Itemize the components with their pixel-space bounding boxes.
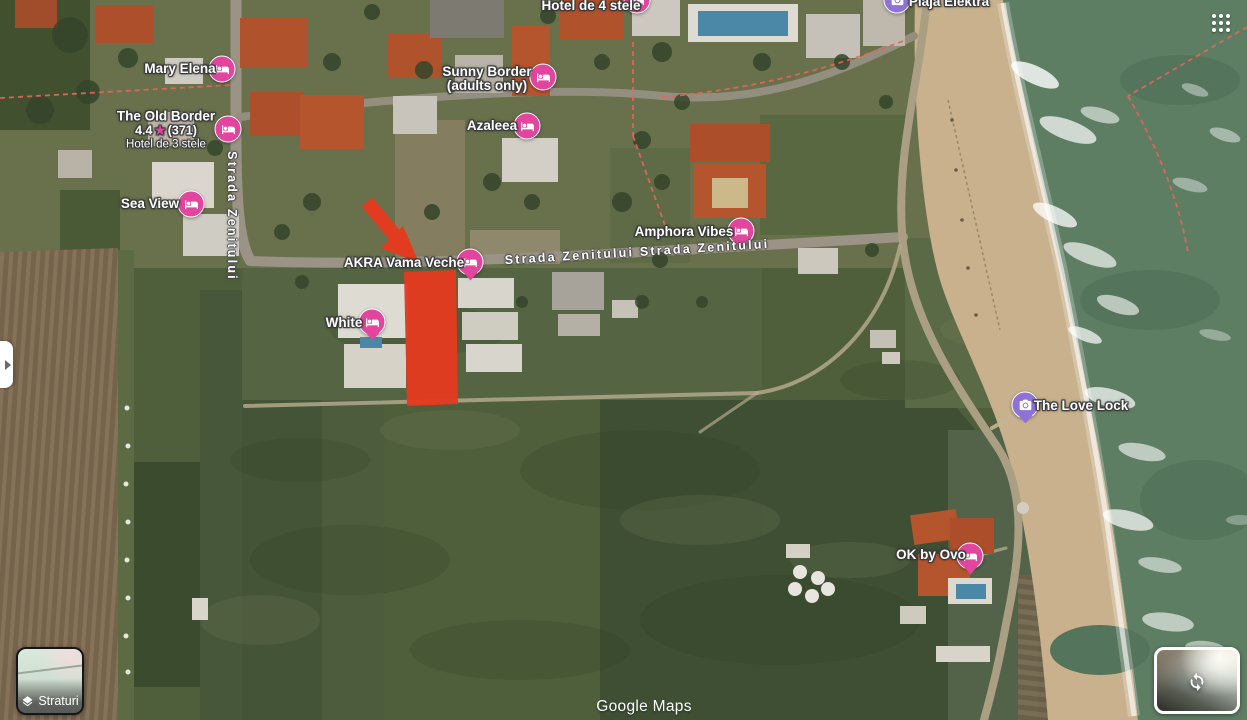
layers-control[interactable]: Straturi — [16, 647, 84, 715]
place-label-sunny-border[interactable]: Sunny Border(adults only) — [442, 65, 531, 93]
place-label-hotel-de-4-stele[interactable]: Hotel de 4 stele — [541, 0, 640, 13]
place-marker-sea-view[interactable] — [178, 191, 205, 218]
google-maps-watermark: Google Maps — [596, 698, 692, 716]
street-view-preview[interactable] — [1154, 647, 1240, 714]
layers-icon — [21, 695, 34, 708]
place-label-mary-elena[interactable]: Mary Elena — [144, 62, 215, 76]
side-panel-expand-tab[interactable] — [0, 341, 13, 388]
bed-icon — [520, 119, 534, 133]
apps-grid-icon[interactable] — [1212, 14, 1230, 32]
place-label-sea-view[interactable]: Sea View — [121, 197, 179, 211]
place-label-akra-vama-veche[interactable]: AKRA Vama Veche — [344, 256, 464, 270]
bed-icon — [365, 315, 379, 329]
place-label-ok-by-ovo[interactable]: OK by Ovo — [896, 548, 966, 562]
place-label-amphora-vibes[interactable]: Amphora Vibes — [635, 225, 734, 239]
place-marker-plaja-elektra[interactable] — [884, 0, 911, 14]
bed-icon — [221, 122, 235, 136]
rating-row: 4.4★(371) — [117, 124, 215, 137]
place-label-plaja-elektra[interactable]: Plaja Elektra — [909, 0, 989, 9]
bed-icon — [184, 197, 198, 211]
road-label-strada-zenitului: Strada Zenitului — [225, 151, 239, 281]
bed-icon — [215, 62, 229, 76]
place-label-the-love-lock[interactable]: The Love Lock — [1034, 399, 1129, 413]
chevron-right-icon — [5, 360, 11, 370]
bed-icon — [734, 224, 748, 238]
place-marker-the-old-border[interactable] — [215, 116, 242, 143]
place-marker-sunny-border[interactable] — [530, 64, 557, 91]
place-subtitle: Hotel de 3 stele — [117, 139, 215, 151]
road-label-strada-zenitului-strada-zenitului: Strada Zenitului Strada Zenitului — [504, 237, 769, 267]
bed-icon — [536, 70, 550, 84]
camera-icon — [1018, 398, 1032, 412]
place-label-azaleea[interactable]: Azaleea — [467, 119, 517, 133]
bed-icon — [463, 255, 477, 269]
place-label-the-old-border[interactable]: The Old Border4.4★(371)Hotel de 3 stele — [117, 109, 215, 150]
rotate-360-icon — [1186, 670, 1208, 692]
map-labels-layer: Mary ElenaThe Old Border4.4★(371)Hotel d… — [0, 0, 1247, 720]
camera-icon — [890, 0, 904, 7]
layers-label: Straturi — [38, 694, 78, 708]
google-maps-satellite-view: Mary ElenaThe Old Border4.4★(371)Hotel d… — [0, 0, 1247, 720]
place-label-white[interactable]: White — [326, 316, 363, 330]
place-marker-azaleea[interactable] — [514, 113, 541, 140]
